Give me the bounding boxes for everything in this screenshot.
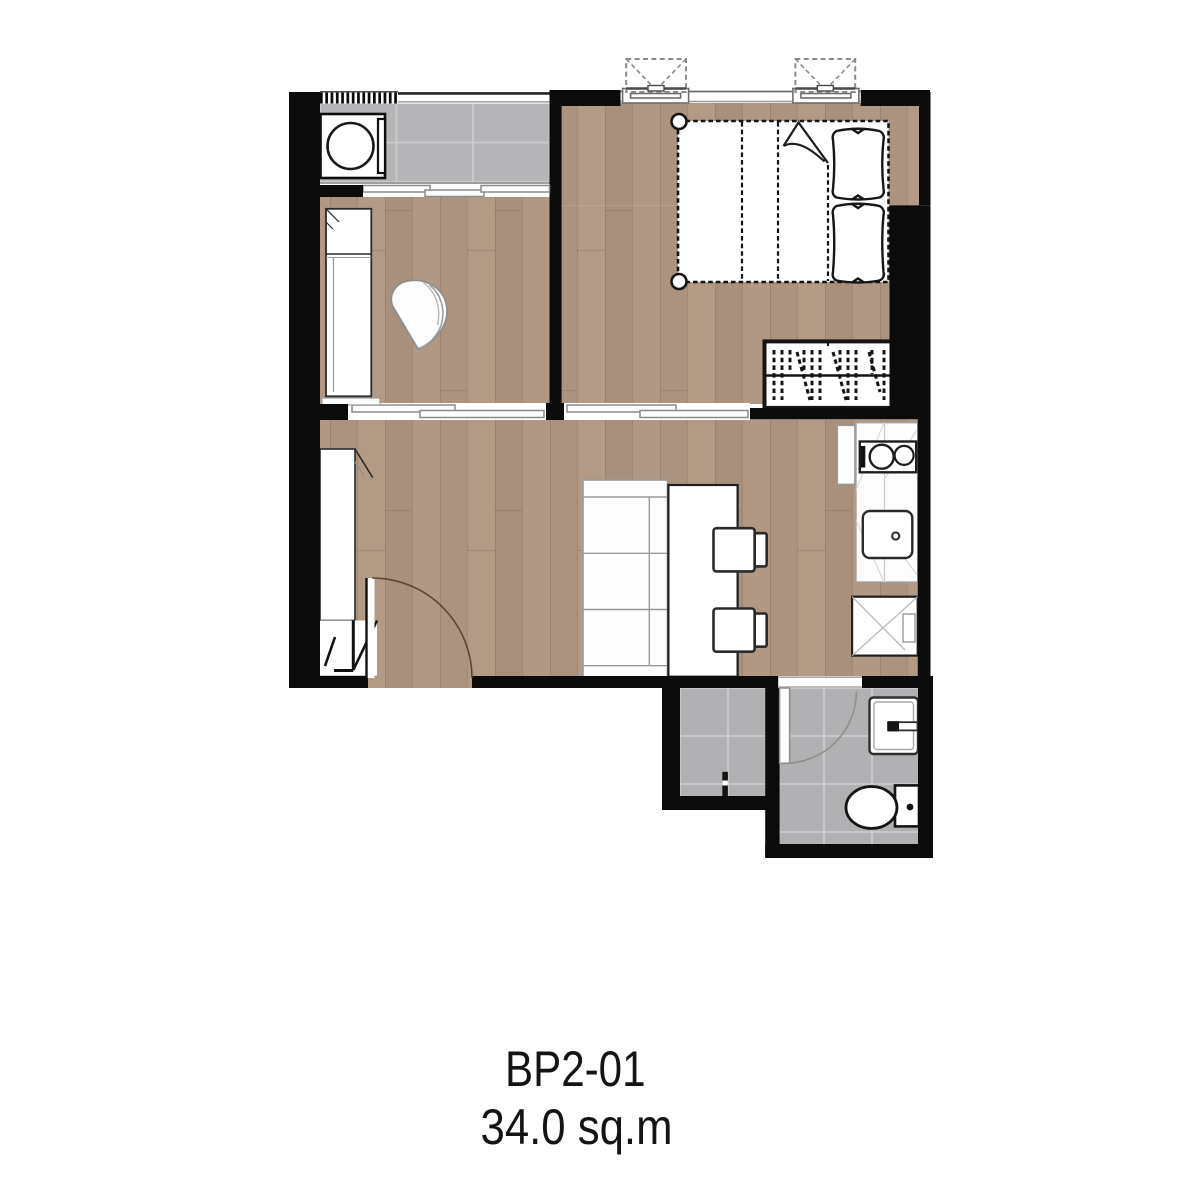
svg-text:34.0 sq.m: 34.0 sq.m bbox=[481, 1099, 673, 1155]
svg-text:BP2-01: BP2-01 bbox=[505, 1041, 646, 1097]
